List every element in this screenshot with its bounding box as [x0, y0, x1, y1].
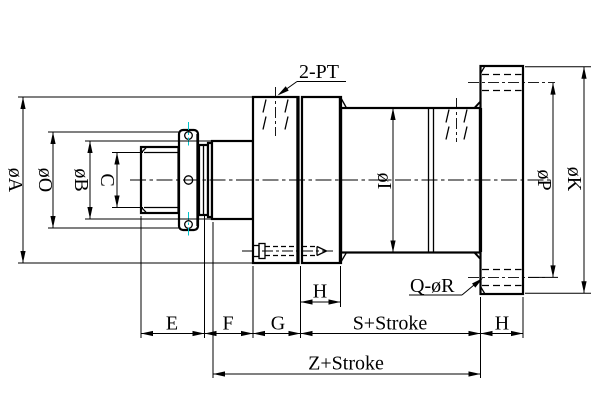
dim-label-Z-stroke: Z+Stroke — [308, 353, 384, 375]
dim-label-dia-I: øI — [373, 173, 395, 190]
dim-label-H-flange: H — [495, 313, 509, 335]
callout-label-ports: 2-PT — [299, 61, 339, 83]
dim-label-dia-B: øB — [70, 168, 92, 191]
dim-label-C: C — [96, 173, 118, 186]
cylinder-dimension-drawing: øA øO øB C øI øP øK — [0, 0, 600, 418]
dim-label-F: F — [222, 313, 233, 335]
dim-label-dia-A: øA — [4, 168, 26, 193]
dim-label-E: E — [166, 313, 178, 335]
dim-label-dia-K: øK — [563, 167, 585, 192]
dim-label-G: G — [271, 313, 285, 335]
dim-label-H-port-block: H — [313, 281, 327, 303]
dim-label-S-stroke: S+Stroke — [353, 313, 428, 335]
drawing-canvas: øA øO øB C øI øP øK — [0, 0, 600, 418]
dim-label-dia-O: øO — [34, 168, 56, 192]
dim-label-dia-P: øP — [533, 169, 555, 190]
callout-label-bolt-holes: Q-øR — [410, 275, 455, 297]
